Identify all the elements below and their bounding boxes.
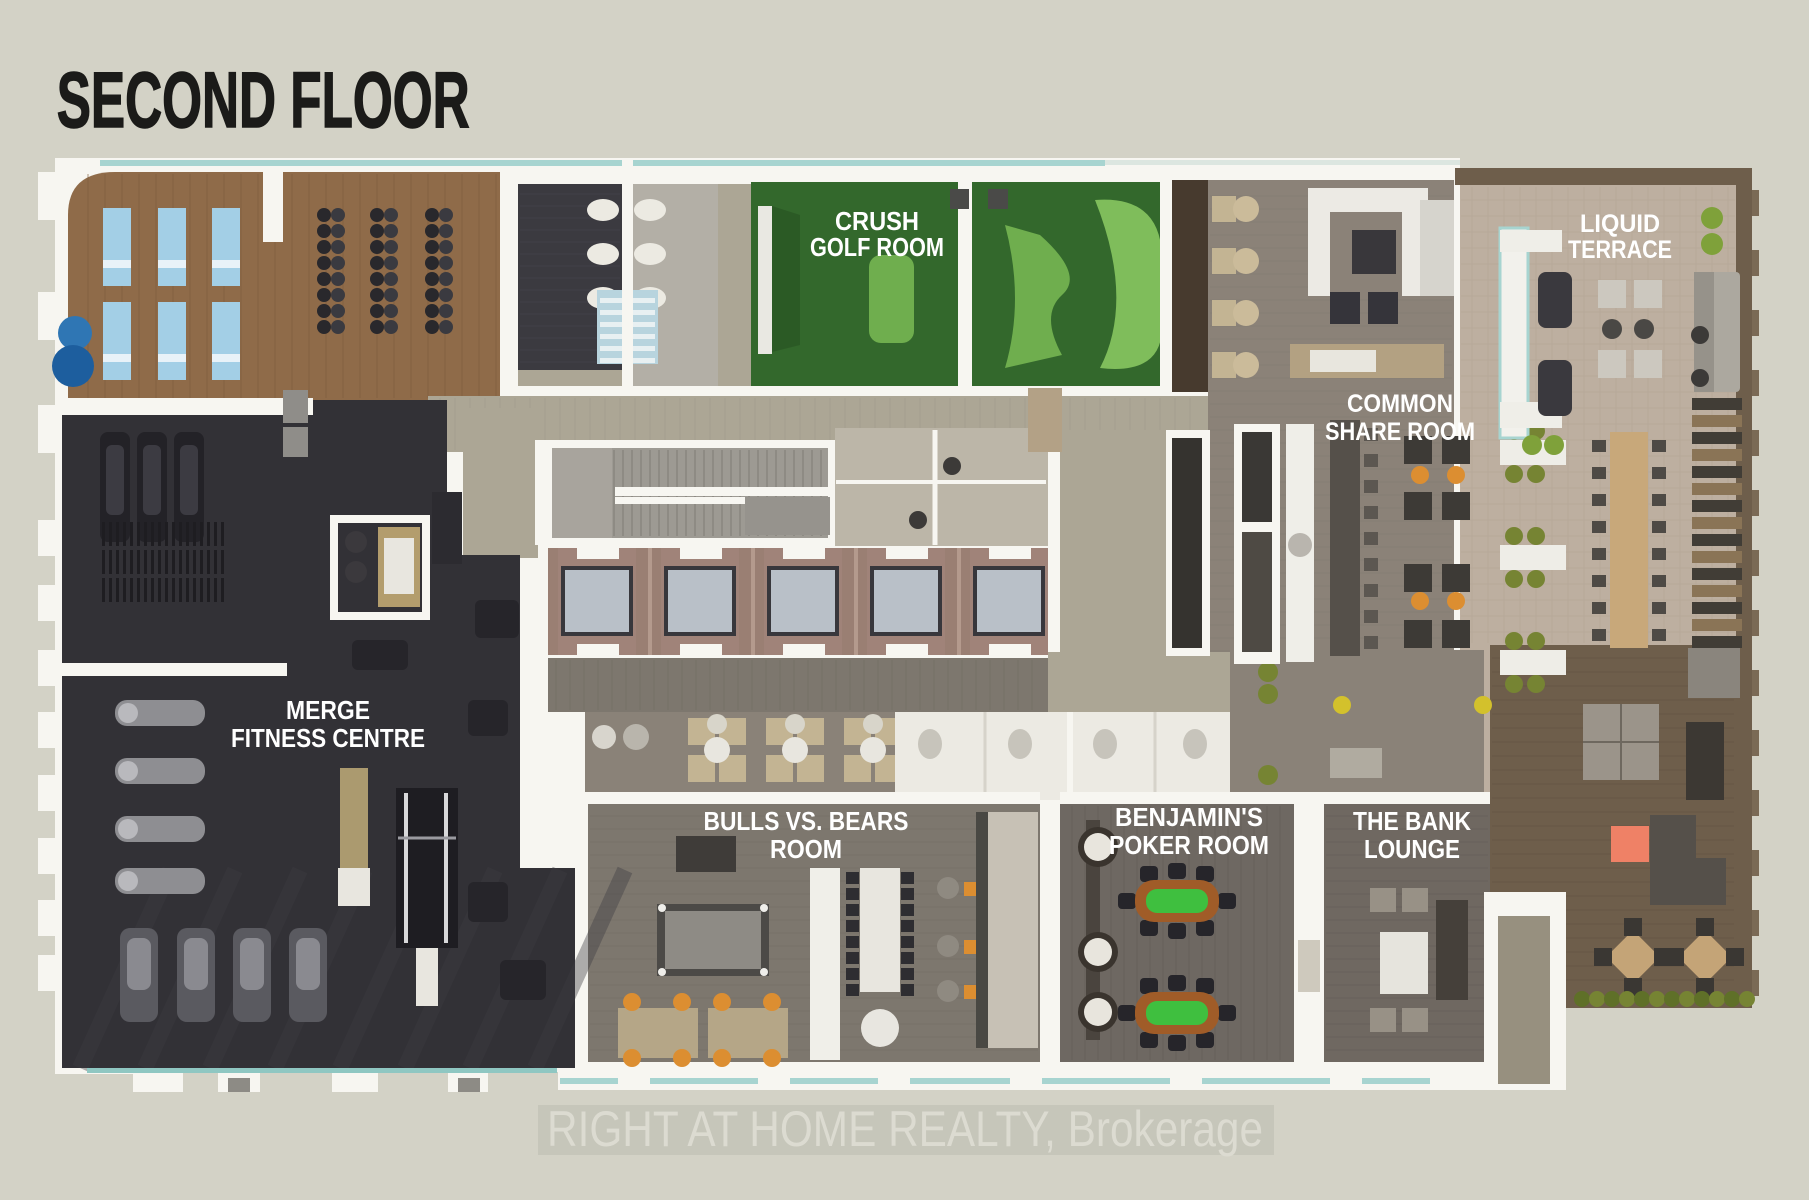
svg-text:LOUNGE: LOUNGE xyxy=(1364,834,1460,864)
svg-text:GOLF ROOM: GOLF ROOM xyxy=(810,232,944,262)
svg-text:BENJAMIN'S: BENJAMIN'S xyxy=(1115,802,1263,832)
svg-text:THE BANK: THE BANK xyxy=(1353,806,1471,836)
svg-text:BULLS VS. BEARS: BULLS VS. BEARS xyxy=(704,806,909,836)
svg-text:SECOND FLOOR: SECOND FLOOR xyxy=(57,56,470,144)
svg-text:MERGE: MERGE xyxy=(286,695,370,725)
svg-text:TERRACE: TERRACE xyxy=(1568,236,1672,264)
svg-text:ROOM: ROOM xyxy=(770,834,842,864)
svg-text:RIGHT AT HOME REALTY, Brokerag: RIGHT AT HOME REALTY, Brokerage xyxy=(547,1101,1263,1157)
svg-text:SHARE ROOM: SHARE ROOM xyxy=(1325,418,1475,446)
svg-text:LIQUID: LIQUID xyxy=(1580,210,1660,238)
svg-text:POKER ROOM: POKER ROOM xyxy=(1109,830,1269,860)
svg-text:COMMON: COMMON xyxy=(1347,390,1453,418)
svg-text:FITNESS CENTRE: FITNESS CENTRE xyxy=(231,723,425,753)
